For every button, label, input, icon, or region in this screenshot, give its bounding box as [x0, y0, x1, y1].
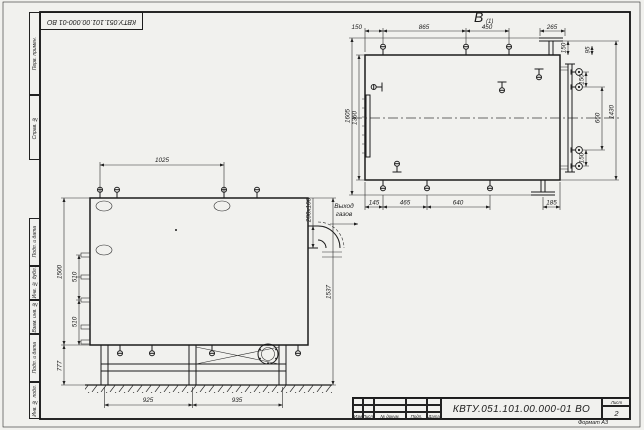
- margin-label: Инв. № подл.: [32, 385, 38, 417]
- valve-icon: [462, 44, 471, 55]
- stamp-col-podp: Подп.: [406, 412, 427, 420]
- ground-hatch: [85, 385, 332, 393]
- center-mark: [175, 229, 177, 231]
- dim-front-left-b: 510: [72, 316, 79, 327]
- designation-text: КВТУ.051.101.00.000-01 ВО: [453, 404, 590, 415]
- margin-cell-inv-podl: Инв. № подл.: [29, 382, 40, 419]
- dim-plan-top-4: 265: [546, 24, 558, 31]
- dim-plan-top-right-a: 150: [561, 42, 568, 53]
- margin-cell-podp2: Подп. и дата: [29, 334, 40, 382]
- dim-plan-left-inner: 1360: [352, 111, 359, 126]
- margin-label: Перв. примен.: [32, 37, 38, 70]
- dim-plan-right-a: 150: [579, 74, 586, 85]
- dim-front-left-overall: 1500: [57, 265, 64, 280]
- dim-plan-right-overall: 1430: [609, 105, 616, 120]
- front-view: Выход газов 1025 510 510 1500 777 1537 2…: [57, 157, 359, 408]
- left-fittings: [81, 253, 90, 344]
- dim-plan-top-1: 150: [351, 24, 362, 31]
- dim-front-left-a: 510: [72, 271, 79, 282]
- margin-label: Взам. инв. №: [32, 301, 38, 333]
- stamp-col-label: Подп.: [411, 414, 423, 419]
- dim-plan-bottom-1: 145: [369, 200, 380, 207]
- stamp-col-doc: № докум.: [374, 412, 406, 420]
- stamp-col-label: Изм: [354, 414, 362, 419]
- nozzle-oval: [96, 245, 112, 255]
- valve-plan-icon: [571, 147, 582, 154]
- dim-plan-bottom-3: 640: [453, 200, 464, 207]
- gas-outlet-label: газов: [336, 211, 353, 218]
- flipped-designation-text: КВТУ.051.101.00.000-01 ВО: [47, 18, 136, 25]
- stamp-cell: [374, 405, 406, 412]
- dim-plan-right-c: 150: [579, 152, 586, 163]
- plan-view: В (1): [345, 9, 623, 210]
- dim-plan-bottom-4: 185: [546, 200, 557, 207]
- stamp-col-data: Дата: [427, 412, 441, 420]
- flange-nozzle-bottom: [531, 180, 555, 195]
- flange-circle: [258, 344, 278, 364]
- stamp-designation: КВТУ.051.101.00.000-01 ВО: [441, 398, 602, 420]
- boiler-body-plan: [365, 55, 560, 180]
- dim-plan-top-right-b: 95: [585, 46, 592, 54]
- stamp-cell: [363, 398, 374, 405]
- gas-outlet-duct: [308, 222, 344, 257]
- dim-front-top: 1025: [155, 157, 170, 164]
- stamp-col-list: Лист: [363, 412, 374, 420]
- valve-icon: [113, 187, 122, 198]
- boiler-body-front: [90, 198, 308, 345]
- flange-nozzle-top: [539, 38, 563, 55]
- margin-label: Справ. №: [32, 116, 38, 139]
- margin-cell-inv-dubl: Инв. № дубл.: [29, 266, 40, 300]
- dim-plan-top-2: 865: [419, 24, 430, 31]
- dim-plan-bottom-2: 465: [400, 200, 411, 207]
- stamp-sheet-label: Лист: [602, 398, 631, 406]
- level-gauge-plan: [362, 95, 370, 157]
- stamp-col-label: № докум.: [380, 414, 399, 419]
- dim-duct-size: 200х100: [306, 197, 313, 223]
- dim-plan-top-3: 450: [482, 24, 493, 31]
- nozzle-oval: [214, 201, 230, 211]
- dim-front-right: 1537: [326, 285, 333, 300]
- stamp-cell: [363, 405, 374, 412]
- margin-label: Подп. и дата: [32, 342, 38, 373]
- stamp-col-izm: Изм: [353, 412, 363, 420]
- margin-cell-perv: Перв. примен.: [29, 12, 40, 95]
- nozzle-oval: [96, 201, 112, 211]
- valve-icon: [294, 345, 303, 356]
- stamp-cell: [406, 405, 427, 412]
- margin-label: Инв. № дубл.: [32, 267, 38, 298]
- stamp-cell: [427, 398, 441, 405]
- sheet-number: 2: [614, 409, 618, 418]
- dim-front-bottom-b: 935: [232, 397, 243, 404]
- valve-icon: [371, 83, 382, 92]
- valve-icon: [393, 161, 402, 172]
- valve-icon: [423, 180, 432, 191]
- dim-front-left-bottom: 777: [57, 360, 64, 371]
- drawing-linework: Выход газов 1025 510 510 1500 777 1537 2…: [0, 0, 644, 430]
- drawing-sheet: Выход газов 1025 510 510 1500 777 1537 2…: [0, 0, 644, 430]
- title-block: Изм Лист № докум. Подп. Дата КВТУ.051.10…: [352, 397, 630, 419]
- stamp-cell: [353, 405, 363, 412]
- stamp-cell: [353, 398, 363, 405]
- valve-icon: [379, 180, 388, 191]
- margin-cell-podp1: Подп. и дата: [29, 218, 40, 266]
- valve-icon: [148, 345, 157, 356]
- stamp-col-label: Лист: [363, 414, 374, 419]
- dim-front-bottom-a: 925: [143, 397, 154, 404]
- valve-icon: [379, 44, 388, 55]
- view-letter: В: [474, 9, 483, 25]
- stamp-cell: [406, 398, 427, 405]
- flipped-designation-box: КВТУ.051.101.00.000-01 ВО: [40, 12, 143, 30]
- valve-icon: [535, 69, 544, 80]
- format-note: Формат А3: [556, 420, 630, 426]
- margin-label: Подп. и дата: [32, 226, 38, 257]
- valve-icon: [486, 180, 495, 191]
- valve-icon: [505, 44, 514, 55]
- stamp-sheet-number: 2: [602, 406, 631, 420]
- dim-plan-left-overall: 1605: [345, 109, 352, 124]
- outer-border: [3, 2, 640, 427]
- margin-cell-vzam: Взам. инв. №: [29, 300, 40, 334]
- valve-icon: [116, 345, 125, 356]
- supports: [101, 345, 286, 385]
- valve-icon: [253, 187, 262, 198]
- valve-icon: [498, 82, 507, 93]
- stamp-cell: [374, 398, 406, 405]
- sheet-label: Лист: [611, 400, 622, 405]
- margin-cell-sprav: Справ. №: [29, 95, 40, 160]
- gas-outlet-label: Выход: [334, 202, 354, 210]
- stamp-cell: [427, 405, 441, 412]
- dim-plan-right-b: 660: [595, 112, 602, 123]
- stamp-col-label: Дата: [428, 414, 440, 419]
